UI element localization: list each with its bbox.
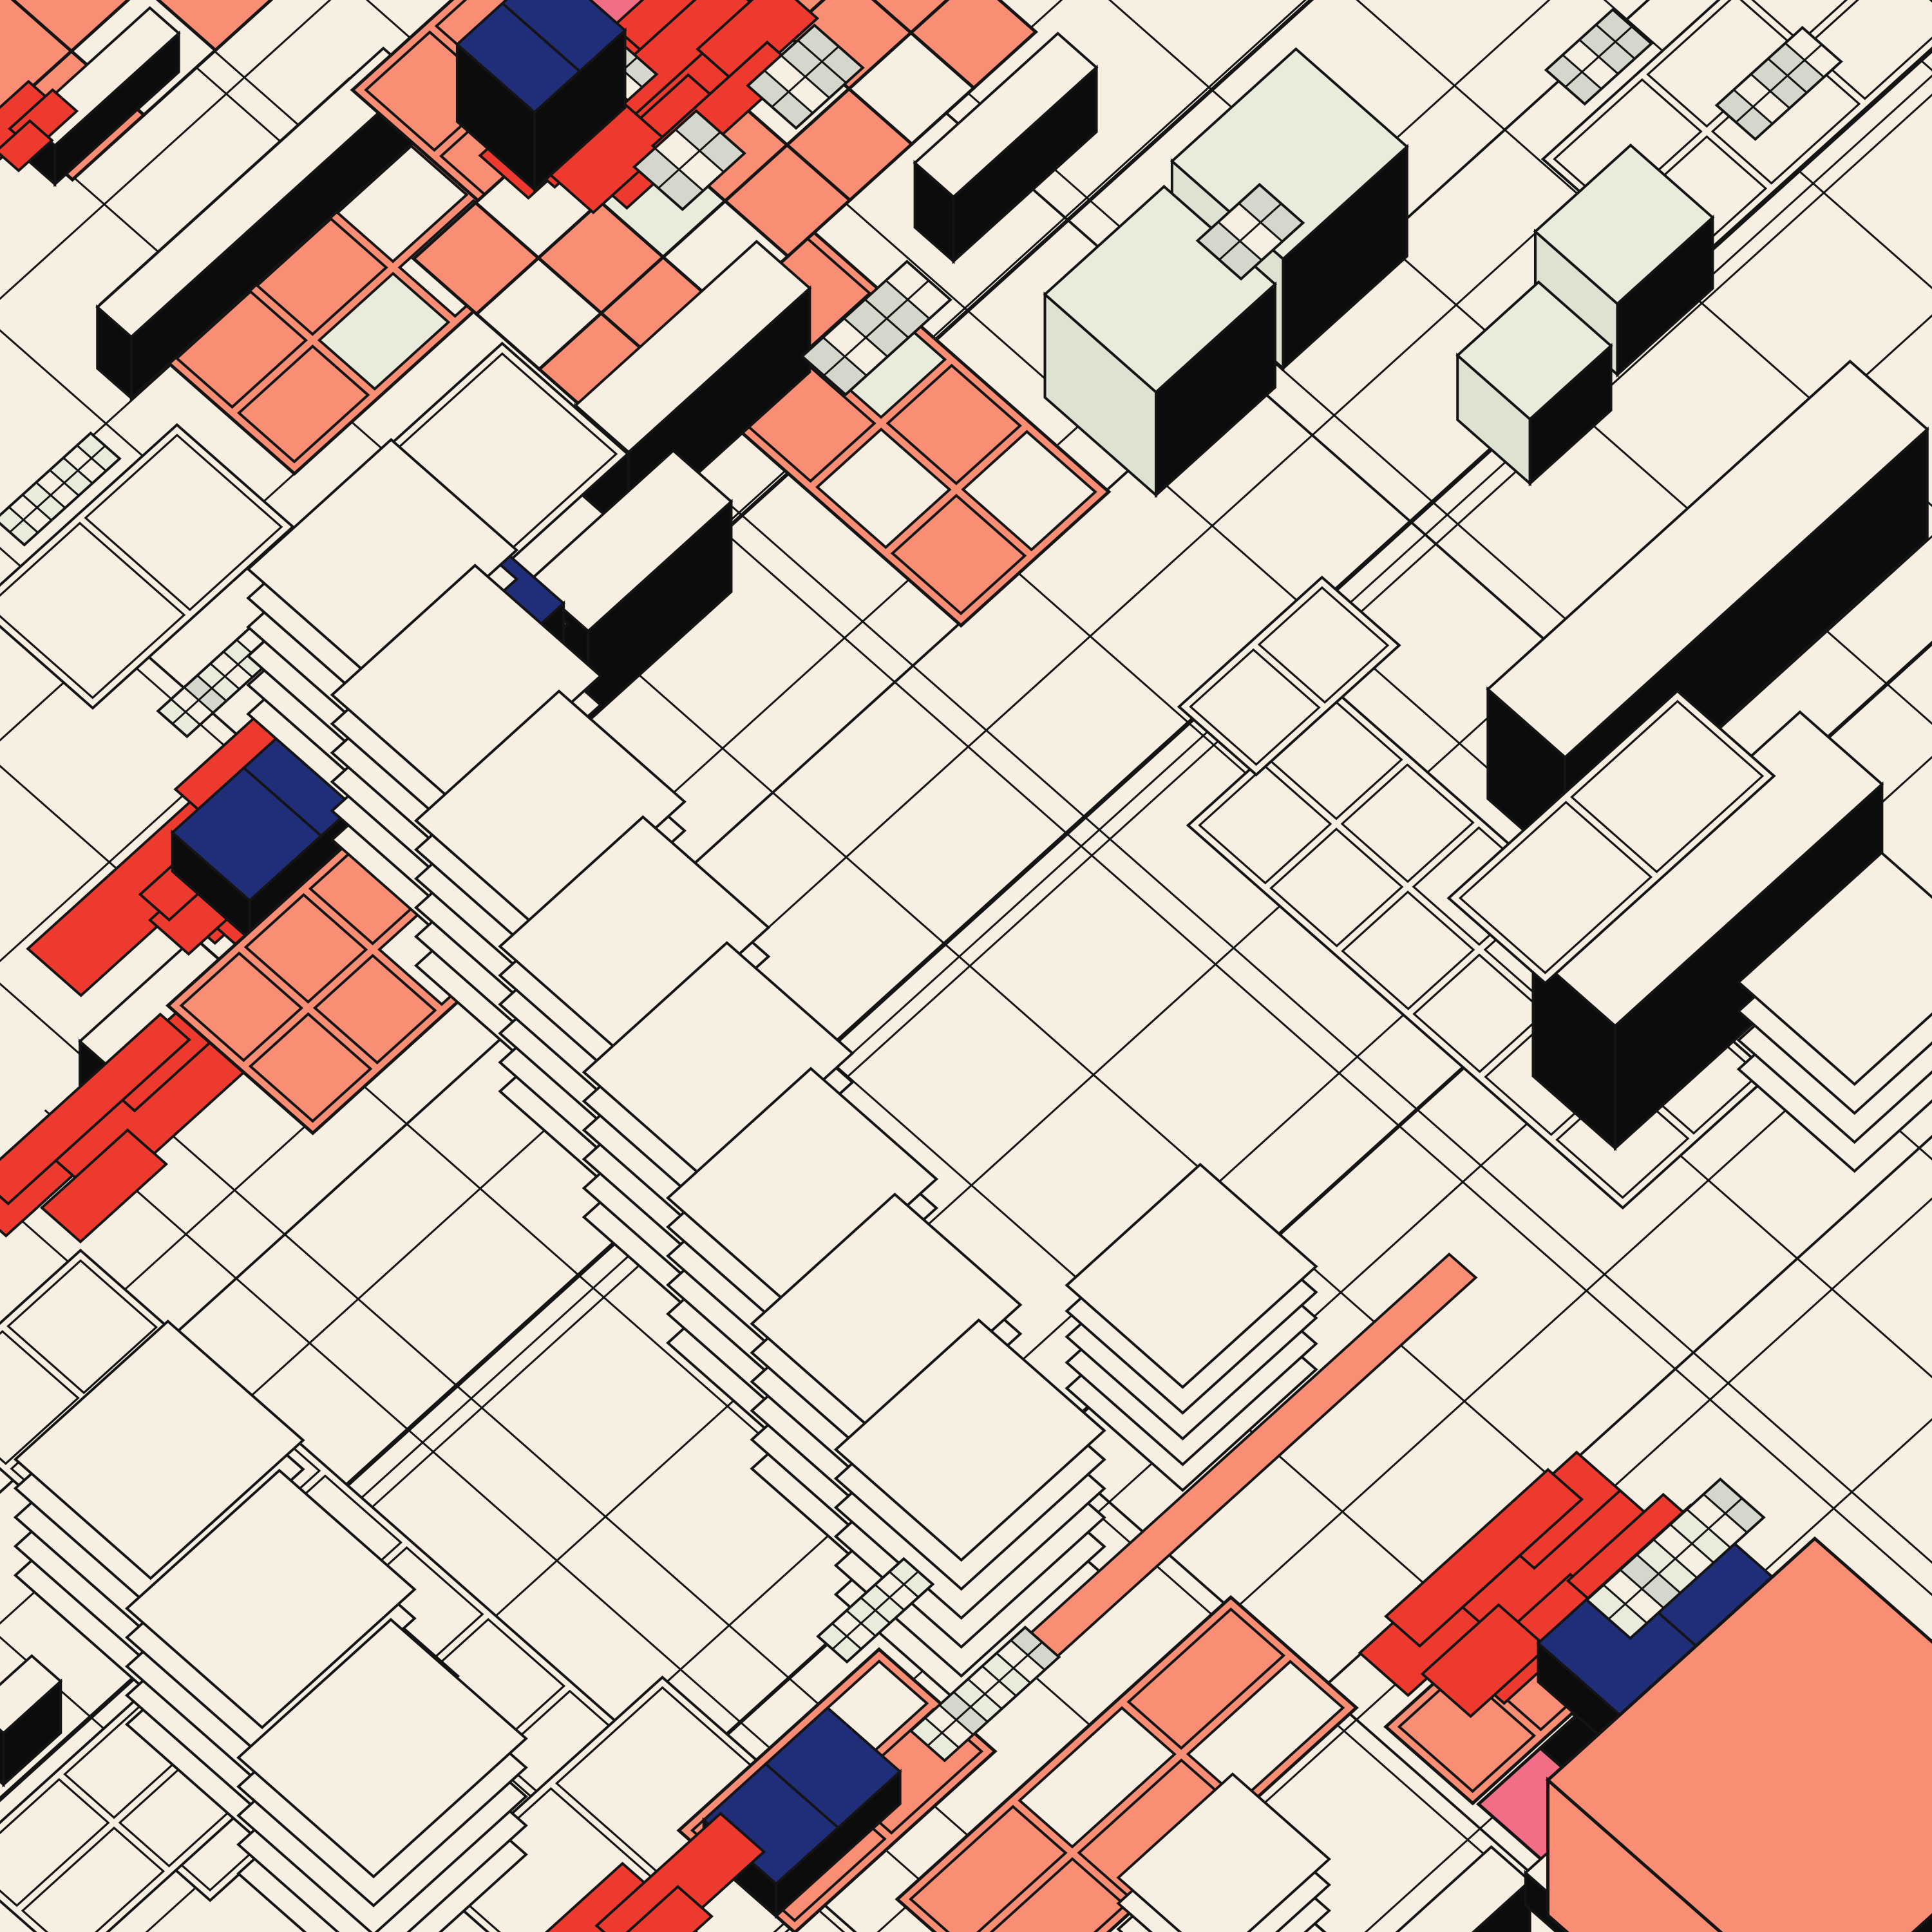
generative-artwork	[0, 0, 1932, 1932]
art-canvas	[0, 0, 1932, 1932]
